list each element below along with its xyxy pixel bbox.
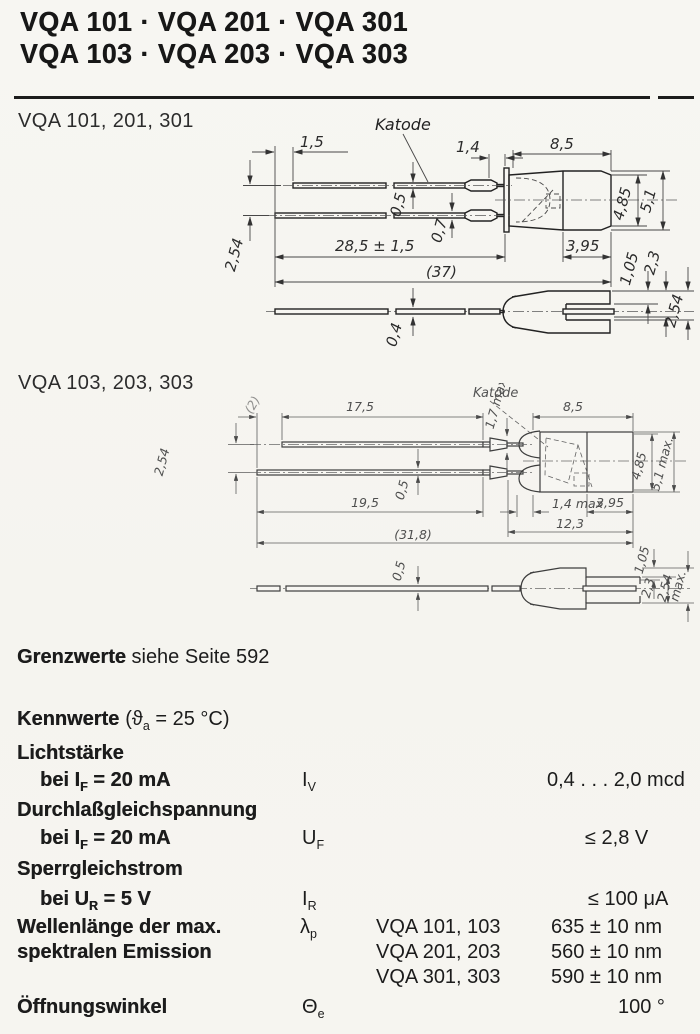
wavelength-value-row: 590 ± 10 nm bbox=[551, 966, 662, 989]
limits-note-rest: siehe Seite 592 bbox=[126, 646, 269, 668]
d2-dim-body-h-outer: 5,1 max. bbox=[647, 435, 676, 492]
d2-dim-lead-top-len: 17,5 bbox=[346, 399, 374, 414]
drawing2-figure: Katode (2) 17,5 1,7 max 8,5 2,54 19,5 0,… bbox=[0, 383, 700, 634]
spec-value-aperture: 100 ° bbox=[618, 996, 665, 1019]
cond-subscript: F bbox=[80, 838, 88, 852]
cond-subscript: R bbox=[89, 899, 98, 913]
wavelength-variant-row: VQA 101, 103 bbox=[376, 916, 501, 939]
page-title-line1: VQA 101 · VQA 201 · VQA 301 bbox=[20, 6, 408, 38]
symbol-subscript: R bbox=[308, 899, 317, 913]
d1-bottom-view-outline bbox=[275, 291, 614, 333]
symbol-subscript: V bbox=[308, 780, 316, 794]
spec-name-aperture: Öffnungswinkel bbox=[17, 996, 167, 1019]
drawing1-figure: Katode 1,5 1,4 8,5 0,5 0,7 2,54 28,5 ± 1… bbox=[0, 110, 700, 376]
spec-name-luminous: Lichtstärke bbox=[17, 742, 124, 765]
spec-value-forward: ≤ 2,8 V bbox=[585, 827, 648, 850]
spec-symbol-aperture: Θe bbox=[302, 996, 325, 1019]
d2-dimension-labels: Katode (2) 17,5 1,7 max 8,5 2,54 19,5 0,… bbox=[151, 383, 689, 603]
d2-dim-head-len: 12,3 bbox=[556, 516, 584, 531]
cond-pre: (ϑ bbox=[125, 708, 143, 730]
d2-dim-lead-pitch: 2,54 bbox=[151, 446, 173, 477]
d1-dim-tip-step: 1,05 bbox=[616, 250, 642, 287]
cond-text: = 5 V bbox=[98, 888, 151, 910]
d2-bottom-view-outline bbox=[257, 568, 640, 609]
cond-text: bei U bbox=[40, 888, 89, 910]
d1-dim-body-h-outer: 5,1 bbox=[636, 187, 660, 215]
spec-name-reverse: Sperrgleichstrom bbox=[17, 858, 183, 881]
cond-text: = 20 mA bbox=[88, 769, 171, 791]
symbol-subscript: e bbox=[318, 1007, 325, 1021]
limits-note-lead: Grenzwerte bbox=[17, 646, 126, 668]
spec-value-luminous: 0,4 . . . 2,0 mcd bbox=[547, 769, 685, 792]
symbol-subscript: F bbox=[316, 838, 324, 852]
spec-name-forward: Durchlaßgleichspannung bbox=[17, 799, 257, 822]
spec-name-wavelength-line2: spektralen Emission bbox=[17, 941, 212, 964]
d1-dim-lead-offset: 1,5 bbox=[300, 133, 324, 151]
spec-name-wavelength-line1: Wellenlänge der max. bbox=[17, 916, 221, 939]
d1-dim-body-len: 8,5 bbox=[550, 135, 574, 153]
cond-text: = 20 mA bbox=[88, 827, 171, 849]
d2-dim-lead-offset: (2) bbox=[241, 393, 263, 416]
symbol-letter: λ bbox=[300, 916, 310, 938]
spec-symbol-wavelength: λp bbox=[300, 916, 317, 939]
symbol-letter: U bbox=[302, 827, 316, 849]
divider-rule bbox=[14, 96, 650, 99]
d1-dim-wire-th: 0,4 bbox=[382, 321, 406, 349]
d2-dim-body-len: 8,5 bbox=[563, 399, 583, 414]
d2-dim-lead-bot-len: 19,5 bbox=[351, 495, 379, 510]
page-title-line2: VQA 103 · VQA 203 · VQA 303 bbox=[20, 38, 408, 70]
d1-dim-lead-bot-th: 0,7 bbox=[427, 216, 451, 244]
wavelength-value-row: 560 ± 10 nm bbox=[551, 941, 662, 964]
d1-dim-lead-len: 28,5 ± 1,5 bbox=[335, 237, 414, 255]
spec-symbol-reverse: IR bbox=[302, 888, 317, 911]
d1-dim-sleeve-h: 2,54 bbox=[661, 292, 687, 329]
cond-post: = 25 °C) bbox=[150, 708, 230, 730]
wavelength-value-row: 635 ± 10 nm bbox=[551, 916, 662, 939]
spec-symbol-forward: UF bbox=[302, 827, 324, 850]
d2-dim-sleeve-h-suffix: max. bbox=[666, 569, 689, 603]
symbol-subscript: p bbox=[310, 927, 317, 941]
datasheet-page: VQA 101 · VQA 201 · VQA 301 VQA 103 · VQ… bbox=[0, 0, 700, 1034]
spec-symbol-luminous: IV bbox=[302, 769, 316, 792]
d2-dim-tip-step: 1,05 bbox=[631, 544, 653, 575]
spec-value-reverse: ≤ 100 μA bbox=[588, 888, 668, 911]
d1-dim-rear-len: 3,95 bbox=[566, 237, 599, 255]
spec-cond-forward: bei IF = 20 mA bbox=[40, 827, 170, 850]
characteristics-heading: Kennwerte(ϑa = 25 °C) bbox=[17, 708, 230, 731]
cond-sub: a bbox=[143, 719, 150, 733]
d2-dim-rear-len: 3,95 bbox=[596, 495, 624, 510]
d1-dim-slot-h: 2,3 bbox=[640, 249, 664, 277]
symbol-letter: Θ bbox=[302, 996, 318, 1018]
d1-dim-crimp-len: 1,4 bbox=[456, 138, 480, 156]
cond-text: bei I bbox=[40, 827, 80, 849]
spec-cond-reverse: bei UR = 5 V bbox=[40, 888, 151, 911]
d2-dim-wire-th: 0,5 bbox=[389, 559, 409, 582]
characteristics-heading-word: Kennwerte bbox=[17, 708, 119, 730]
d1-dim-total-len: (37) bbox=[426, 263, 457, 281]
characteristics-condition: (ϑa = 25 °C) bbox=[125, 708, 229, 730]
d2-dim-lead-th: 0,5 bbox=[392, 478, 412, 501]
wavelength-variant-row: VQA 201, 203 bbox=[376, 941, 501, 964]
d2-side-view-outline bbox=[257, 431, 633, 492]
cond-text: bei I bbox=[40, 769, 80, 791]
wavelength-variant-row: VQA 301, 303 bbox=[376, 966, 501, 989]
divider-rule-segment bbox=[658, 96, 694, 99]
cond-subscript: F bbox=[80, 780, 88, 794]
d1-dim-body-h-inner: 4,85 bbox=[609, 185, 635, 222]
d1-katode-label: Katode bbox=[375, 115, 431, 134]
d1-dim-lead-pitch: 2,54 bbox=[221, 236, 247, 273]
spec-cond-luminous: bei IF = 20 mA bbox=[40, 769, 170, 792]
limits-note: Grenzwerte siehe Seite 592 bbox=[17, 646, 269, 669]
d2-dim-total-len: (31,8) bbox=[394, 527, 432, 542]
